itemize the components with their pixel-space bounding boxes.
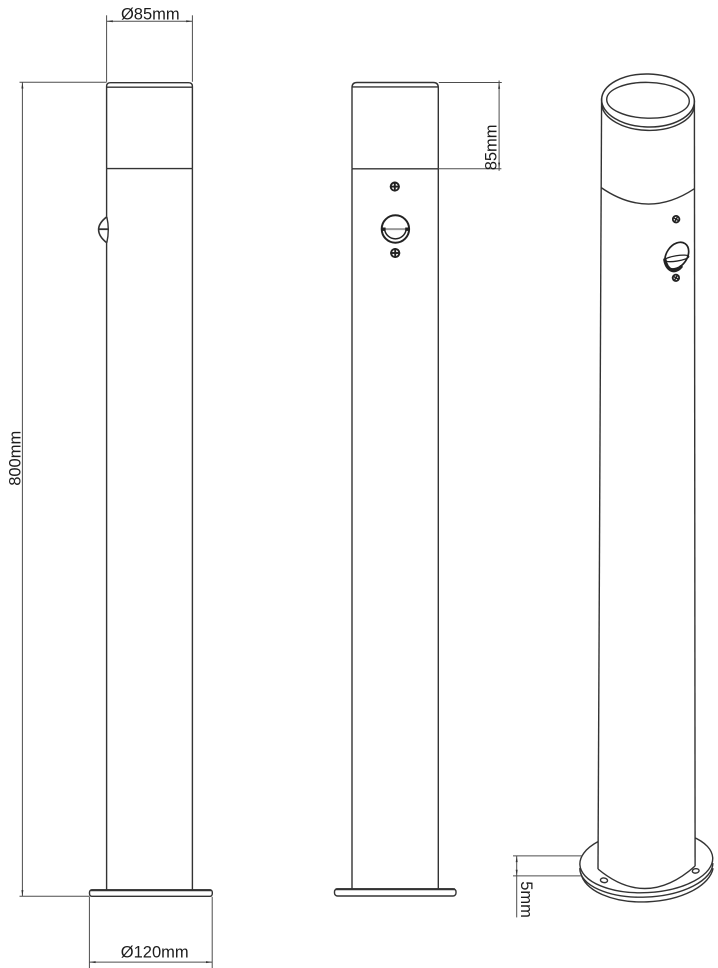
svg-text:Ø120mm: Ø120mm [121,943,189,961]
svg-text:85mm: 85mm [482,124,500,170]
svg-text:5mm: 5mm [517,881,535,918]
svg-text:800mm: 800mm [7,431,25,486]
